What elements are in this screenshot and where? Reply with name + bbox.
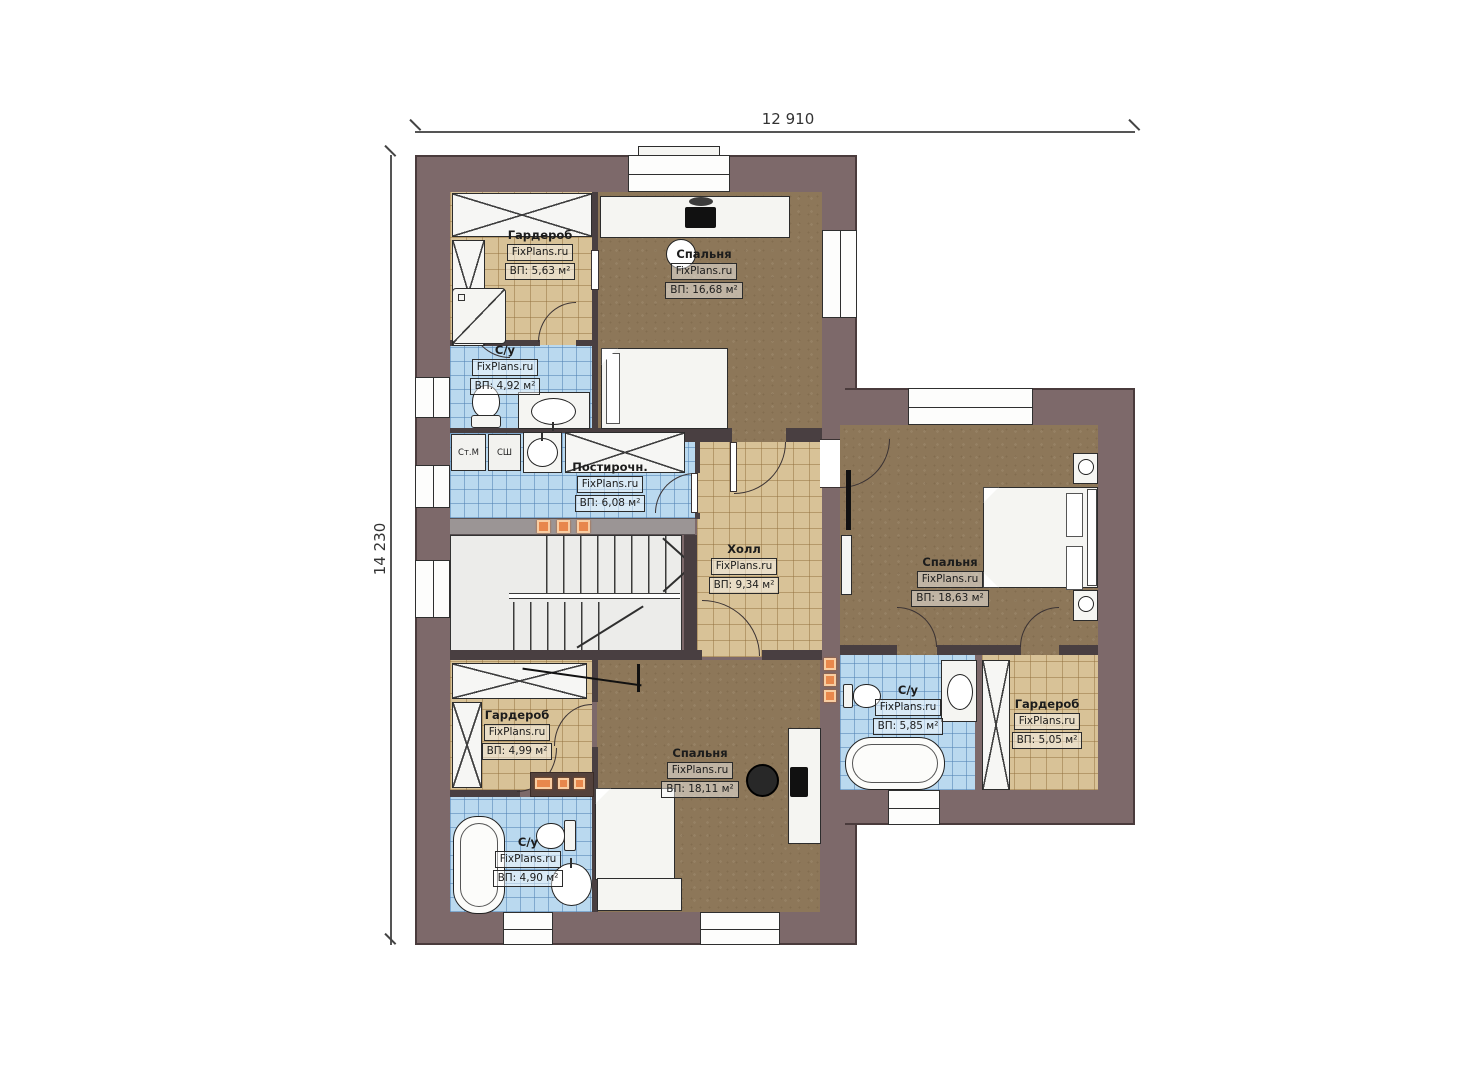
window-bottom-1 (503, 912, 553, 945)
room-area: ВП: 4,92 м² (470, 378, 541, 395)
bathtub (845, 737, 945, 790)
brand-watermark: FixPlans.ru (495, 851, 562, 868)
room-name: С/у (430, 344, 580, 357)
wall-ac-bracket (637, 664, 640, 692)
wall-lamp (824, 658, 836, 670)
room-area: ВП: 5,85 м² (873, 718, 944, 735)
nightstand-lamp (1078, 459, 1094, 475)
door-leaf (730, 442, 737, 492)
dimension-left-line (390, 155, 392, 945)
partition (592, 290, 598, 432)
window-bottom-2 (700, 912, 780, 945)
room-area: ВП: 4,90 м² (493, 870, 564, 887)
room-label-bedroom-right: Спальня FixPlans.ru ВП: 18,63 м² (875, 556, 1025, 607)
room-area: ВП: 5,63 м² (505, 263, 576, 280)
dimension-top-label: 12 910 (743, 110, 833, 128)
partition (762, 650, 822, 660)
window-right-top (822, 230, 857, 318)
room-area: ВП: 18,11 м² (661, 781, 739, 798)
room-area: ВП: 9,34 м² (709, 577, 780, 594)
brand-watermark: FixPlans.ru (507, 244, 574, 261)
stairs-lower-flight (513, 602, 615, 655)
partition (1059, 645, 1098, 655)
room-name: Гардероб (465, 229, 615, 242)
partition (450, 790, 520, 797)
door-opening (820, 439, 840, 488)
room-area: ВП: 16,68 м² (665, 282, 743, 299)
room-name: Холл (669, 543, 819, 556)
sink-oval (531, 398, 576, 425)
stairs-landing-rail (509, 593, 680, 599)
nightstand-lamp (1078, 596, 1094, 612)
window-left-2 (415, 465, 450, 508)
drying-cabinet: СШ (488, 434, 521, 471)
room-label-bathroom-top-left: С/у FixPlans.ru ВП: 4,92 м² (430, 344, 580, 395)
brand-watermark: FixPlans.ru (917, 571, 984, 588)
toilet-tank (471, 415, 501, 428)
shower-tray-corner (458, 294, 465, 301)
bed-double (595, 788, 675, 880)
door-leaf (691, 473, 698, 513)
ceiling-lamp (537, 520, 550, 533)
room-area: ВП: 18,63 м² (911, 590, 989, 607)
partition (695, 513, 700, 519)
room-name: Спальня (629, 248, 779, 261)
floor-plan-canvas: 12 910 14 230 (0, 0, 1473, 1080)
room-label-wardrobe-top-left: Гардероб FixPlans.ru ВП: 5,63 м² (465, 229, 615, 280)
window-left-3 (415, 560, 450, 618)
ceiling-lamp (535, 778, 552, 789)
ceiling-lamp (574, 778, 585, 789)
tv-console (841, 535, 852, 595)
bed-headboard (1087, 489, 1097, 586)
room-label-bedroom-top: Спальня FixPlans.ru ВП: 16,68 м² (629, 248, 779, 299)
dimension-left-label: 14 230 (371, 504, 389, 594)
partition (937, 645, 1021, 655)
ceiling-lamp (577, 520, 590, 533)
wardrobe-cabinet (452, 663, 587, 699)
partition (450, 650, 702, 660)
brand-watermark: FixPlans.ru (711, 558, 778, 575)
bed-pillow (1066, 546, 1083, 590)
window-top (628, 155, 730, 192)
dimension-tick (1129, 119, 1141, 131)
dimension-top-line (415, 131, 1135, 133)
room-label-laundry: Постирочн. FixPlans.ru ВП: 6,08 м² (535, 461, 685, 512)
bed-pillow (1066, 493, 1083, 537)
brand-watermark: FixPlans.ru (667, 762, 734, 779)
tv (685, 207, 716, 228)
dimension-tick (410, 119, 422, 131)
brand-watermark: FixPlans.ru (671, 263, 738, 280)
room-area: ВП: 6,08 м² (575, 495, 646, 512)
brand-watermark: FixPlans.ru (577, 476, 644, 493)
wall-tv (846, 470, 851, 530)
corridor-partition-band (450, 518, 695, 535)
brand-watermark: FixPlans.ru (472, 359, 539, 376)
faucet (552, 422, 554, 431)
room-name: Спальня (875, 556, 1025, 569)
bed-foot-bench (597, 878, 682, 911)
brand-watermark: FixPlans.ru (875, 699, 942, 716)
partition (786, 428, 822, 442)
room-label-wardrobe-bottom-left: Гардероб FixPlans.ru ВП: 4,99 м² (442, 709, 592, 760)
room-name: Гардероб (972, 698, 1122, 711)
room-label-bathroom-bottom-right: С/у FixPlans.ru ВП: 5,85 м² (833, 684, 983, 735)
room-area: ВП: 4,99 м² (482, 743, 553, 760)
window-wing-bottom (888, 790, 940, 825)
window-wing-top (908, 388, 1033, 425)
room-name: Спальня (625, 747, 775, 760)
brand-watermark: FixPlans.ru (1014, 713, 1081, 730)
ceiling-lamp (558, 778, 569, 789)
room-label-hall: Холл FixPlans.ru ВП: 9,34 м² (669, 543, 819, 594)
room-name: С/у (453, 836, 603, 849)
drying-cabinet-label: СШ (497, 448, 512, 458)
brand-watermark: FixPlans.ru (484, 724, 551, 741)
room-name: Гардероб (442, 709, 592, 722)
staircase (450, 535, 682, 657)
room-label-wardrobe-bottom-right: Гардероб FixPlans.ru ВП: 5,05 м² (972, 698, 1122, 749)
stairs-upper-flight (546, 536, 681, 593)
washing-machine: Ст.М (451, 434, 486, 471)
partition (592, 660, 598, 702)
bed-pillow (606, 353, 620, 424)
washing-machine-label: Ст.М (458, 448, 479, 458)
room-label-bathroom-bottom-left: С/у FixPlans.ru ВП: 4,90 м² (453, 836, 603, 887)
partition (840, 645, 897, 655)
room-name: С/у (833, 684, 983, 697)
room-area: ВП: 5,05 м² (1012, 732, 1083, 749)
faucet (541, 433, 543, 441)
room-name: Постирочн. (535, 461, 685, 474)
tv-base (689, 197, 713, 206)
room-label-bedroom-bottom: Спальня FixPlans.ru ВП: 18,11 м² (625, 747, 775, 798)
ceiling-lamp (557, 520, 570, 533)
bed-double (601, 348, 728, 429)
monitor (790, 767, 808, 797)
